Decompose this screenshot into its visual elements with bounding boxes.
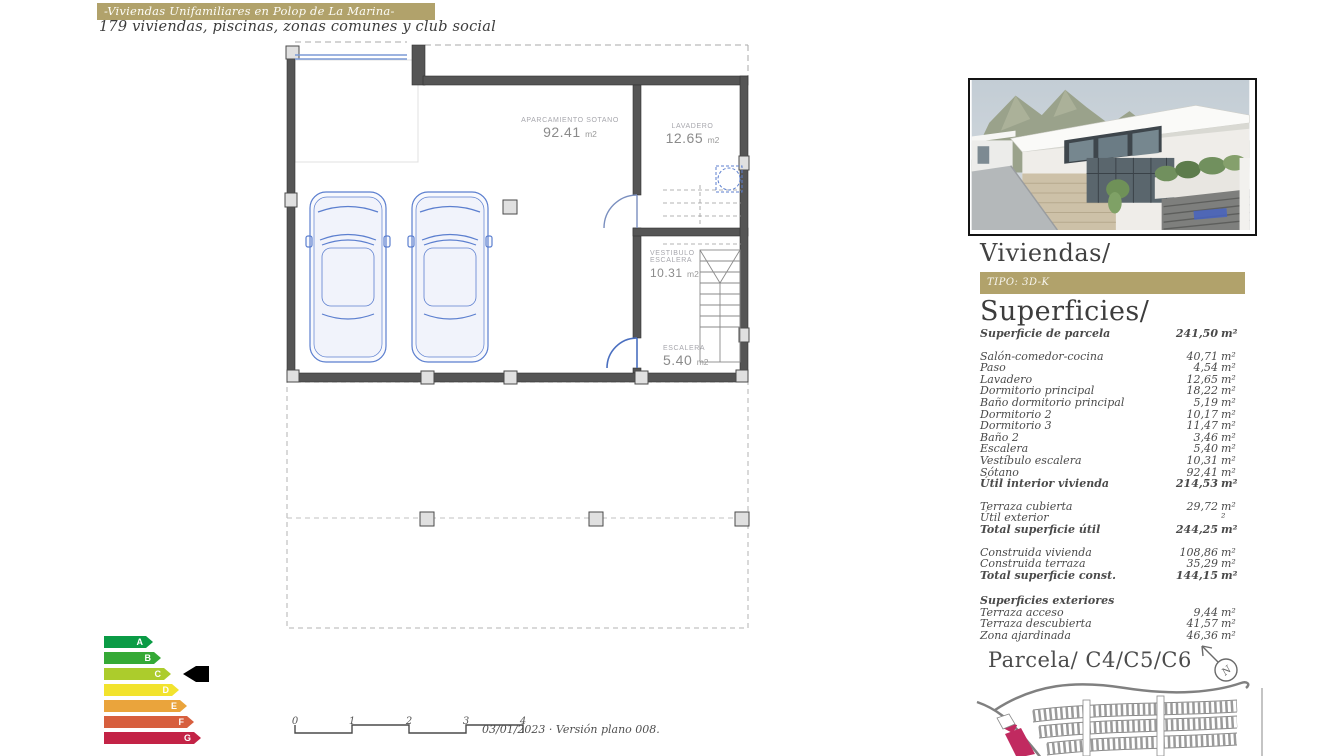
energy-efficiency-label: ABCDEFG	[104, 636, 219, 748]
surface-value: 46,36	[1172, 630, 1218, 642]
door-arc-lavadero	[604, 195, 637, 228]
parcel-map	[975, 676, 1275, 756]
scale-tick-label: 3	[460, 716, 472, 727]
surface-group: Salón-comedor-cocina40,71m²Paso4,54m²Lav…	[980, 351, 1238, 490]
surface-label: Construida terraza	[980, 558, 1172, 570]
villa-render-art	[970, 80, 1251, 230]
scale-tick-label: 0	[289, 716, 301, 727]
surface-row: Baño dormitorio principal5,19m²	[980, 397, 1238, 409]
surface-row: Total superficie const.144,15m²	[980, 570, 1238, 582]
surface-group: Terraza cubierta29,72m²Útil exterior²Tot…	[980, 501, 1238, 536]
energy-grade-bar: G	[104, 732, 219, 744]
energy-grade-letter: F	[104, 716, 187, 728]
surface-value: 5,19	[1172, 397, 1218, 409]
energy-bar-tip	[164, 668, 171, 680]
washing-machine-icon	[716, 166, 742, 192]
plan-sheet: -Viviendas Unifamiliares en Polop de La …	[0, 0, 1319, 756]
project-subtitle: 179 viviendas, piscinas, zonas comunes y…	[99, 19, 496, 35]
surface-group: Construida vivienda108,86m²Construida te…	[980, 547, 1238, 582]
energy-grade-letter: D	[104, 684, 172, 696]
energy-grade-bar: B	[104, 652, 219, 664]
project-title: -Viviendas Unifamiliares en Polop de La …	[97, 3, 435, 20]
car-icon	[306, 192, 390, 362]
surface-unit: m²	[1218, 420, 1238, 432]
surface-label: Dormitorio 3	[980, 420, 1172, 432]
surface-label: Útil interior vivienda	[980, 478, 1172, 490]
room-label-escalera: ESCALERA 5.40 m2	[663, 345, 738, 370]
surface-value: 214,53	[1172, 478, 1218, 490]
parcela-heading: Parcela/ C4/C5/C6	[988, 648, 1192, 672]
energy-current-marker	[183, 666, 209, 682]
energy-bar-tip	[187, 716, 194, 728]
surface-value: 29,72	[1172, 501, 1218, 513]
surface-unit: m²	[1218, 558, 1238, 570]
surface-unit: m²	[1218, 570, 1238, 582]
energy-bar-tip	[146, 636, 153, 648]
surface-group: Superficie de parcela241,50m²	[980, 328, 1238, 340]
car-icon	[408, 192, 492, 362]
surface-value: 244,25	[1172, 524, 1218, 536]
surface-label: Vestíbulo escalera	[980, 455, 1172, 467]
surface-label: Zona ajardinada	[980, 630, 1172, 642]
surface-value: 10,31	[1172, 455, 1218, 467]
surface-label: Total superficie const.	[980, 570, 1172, 582]
surface-row: Útil interior vivienda214,53m²	[980, 478, 1238, 490]
version-note: 03/01/2023 · Versión plano 008.	[482, 723, 660, 736]
tipo-badge: TIPO: 3D-K	[980, 272, 1245, 294]
energy-grade-bar: F	[104, 716, 219, 728]
surface-row: Superficie de parcela241,50m²	[980, 328, 1238, 340]
energy-bar-tip	[180, 700, 187, 712]
surface-value: 35,29	[1172, 558, 1218, 570]
energy-grade-bar: E	[104, 700, 219, 712]
marker-arrow-icon	[183, 666, 196, 682]
energy-grade-bar: A	[104, 636, 219, 648]
room-label-lavadero: LAVADERO 12.65 m2	[645, 123, 740, 148]
surface-value: 11,47	[1172, 420, 1218, 432]
energy-grade-letter: B	[104, 652, 154, 664]
surface-row: Vestíbulo escalera10,31m²	[980, 455, 1238, 467]
surface-label: Salón-comedor-cocina	[980, 351, 1172, 363]
surface-label: Total superficie útil	[980, 524, 1172, 536]
surface-row: Dormitorio 311,47m²	[980, 420, 1238, 432]
energy-bar-tip	[154, 652, 161, 664]
scale-tick-label: 2	[403, 716, 415, 727]
energy-bar-tip	[172, 684, 179, 696]
surfaces-table: Superficie de parcela241,50m²Salón-comed…	[980, 328, 1238, 653]
surface-value: 144,15	[1172, 570, 1218, 582]
surface-unit: m²	[1218, 630, 1238, 642]
superficies-heading: Superficies/	[980, 296, 1149, 327]
surface-row: Total superficie útil244,25m²	[980, 524, 1238, 536]
room-label-aparcamiento: APARCAMIENTO SOTANO 92.41 m2	[500, 117, 640, 142]
energy-grade-letter: G	[104, 732, 194, 744]
door-arc-escalera	[607, 338, 637, 368]
energy-grade-letter: A	[104, 636, 146, 648]
energy-grade-letter: E	[104, 700, 180, 712]
surface-row: Construida terraza35,29m²	[980, 558, 1238, 570]
driveway-outline	[295, 60, 418, 162]
parcel-rows	[1033, 700, 1237, 755]
surface-row: Zona ajardinada46,36m²	[980, 630, 1238, 642]
surface-unit: m²	[1218, 524, 1238, 536]
garage-door-line	[295, 55, 407, 59]
energy-grade-bar: D	[104, 684, 219, 696]
room-label-vestibulo: VESTIBULO ESCALERA 10.31 m2	[650, 250, 705, 282]
surface-group: Superficies exterioresTerraza acceso9,44…	[980, 595, 1238, 641]
viviendas-heading: Viviendas/	[980, 239, 1111, 267]
villa-render-photo	[968, 78, 1257, 236]
surface-unit: m²	[1218, 328, 1238, 340]
surface-unit: m²	[1218, 455, 1238, 467]
surface-unit: m²	[1218, 478, 1238, 490]
surface-value: 241,50	[1172, 328, 1218, 340]
energy-bar-tip	[194, 732, 201, 744]
surface-label: Superficie de parcela	[980, 328, 1172, 340]
scale-tick-label: 1	[346, 716, 358, 727]
surface-label: Baño dormitorio principal	[980, 397, 1172, 409]
surface-unit: m²	[1218, 397, 1238, 409]
energy-grade-letter: C	[104, 668, 164, 680]
